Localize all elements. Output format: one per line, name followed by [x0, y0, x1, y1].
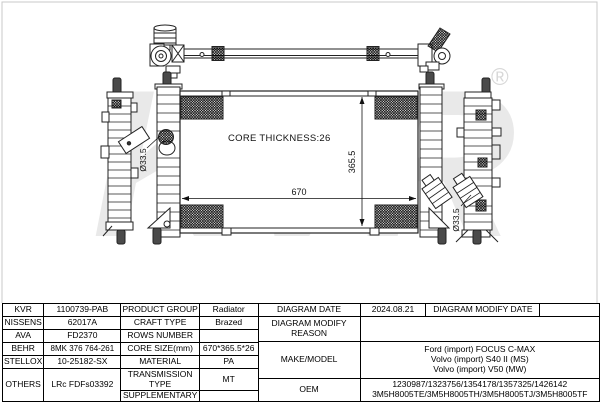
registered-mark: ® — [491, 64, 509, 91]
label-product-group: PRODUCT GROUP — [121, 304, 199, 317]
number-kvr: 1100739-PAB — [44, 304, 121, 317]
value-product-group: Radiator — [199, 304, 258, 317]
number-others: LRc FDFs03392 — [44, 369, 121, 402]
label-material: MATERIAL — [121, 356, 199, 369]
svg-text:Ø33.5: Ø33.5 — [138, 148, 148, 171]
label-diagram-date: DIAGRAM DATE — [258, 304, 360, 317]
svg-text:670: 670 — [291, 187, 306, 197]
vehicle-info-table: DIAGRAM DATE 2024.08.21 DIAGRAM MODIFY D… — [258, 303, 600, 402]
brand-stellox: STELLOX — [3, 356, 44, 369]
brand-nissens: NISSENS — [3, 317, 44, 330]
label-transmission-type: TRANSMISSION TYPE — [121, 369, 199, 391]
number-ava: FD2370 — [44, 330, 121, 343]
brand-ava: AVA — [3, 330, 44, 343]
label-diagram-modify-date: DIAGRAM MODIFY DATE — [426, 304, 540, 317]
number-nissens: 62017A — [44, 317, 121, 330]
label-oem: OEM — [258, 379, 360, 402]
number-behr: 8MK 376 764-261 — [44, 343, 121, 356]
label-core-size: CORE SIZE(mm) — [121, 343, 199, 356]
brand-kvr: KVR — [3, 304, 44, 317]
label-rows-number: ROWS NUMBER — [121, 330, 199, 343]
value-core-size: 670*365.5*26 — [199, 343, 258, 356]
core-thickness-label: CORE THICKNESS:26 — [228, 133, 331, 144]
brand-behr: BEHR — [3, 343, 44, 356]
label-make-model: MAKE/MODEL — [258, 342, 360, 379]
inlet-pipe-opening — [159, 130, 174, 145]
svg-text:Ø33.5: Ø33.5 — [451, 208, 461, 231]
label-supplementary: SUPPLEMENTARY — [121, 391, 199, 402]
brand-others: OTHERS — [3, 369, 44, 402]
spec-table: KVR 1100739-PAB PRODUCT GROUP Radiator N… — [2, 303, 600, 402]
value-diagram-modify-date — [540, 304, 600, 317]
radiator-technical-drawing: KVR ® — [0, 0, 600, 303]
label-craft-type: CRAFT TYPE — [121, 317, 199, 330]
value-make-model: Ford (import) FOCUS C-MAX Volvo (import)… — [360, 342, 599, 379]
value-oem: 1230987/1323756/1354178/1357325/1426142 … — [360, 379, 599, 402]
value-transmission-type: MT — [199, 369, 258, 391]
radiator-front-view — [148, 72, 452, 244]
part-numbers-table: KVR 1100739-PAB PRODUCT GROUP Radiator N… — [2, 303, 259, 402]
label-diagram-modify-reason: DIAGRAM MODIFY REASON — [258, 317, 360, 342]
value-supplementary — [199, 391, 258, 402]
number-stellox: 10-25182-SX — [44, 356, 121, 369]
value-rows-number — [199, 330, 258, 343]
value-material: PA — [199, 356, 258, 369]
value-diagram-modify-reason — [360, 317, 599, 342]
svg-text:365.5: 365.5 — [347, 151, 357, 174]
catalog-page: KVR ® — [0, 0, 600, 402]
value-craft-type: Brazed — [199, 317, 258, 330]
value-diagram-date: 2024.08.21 — [360, 304, 426, 317]
